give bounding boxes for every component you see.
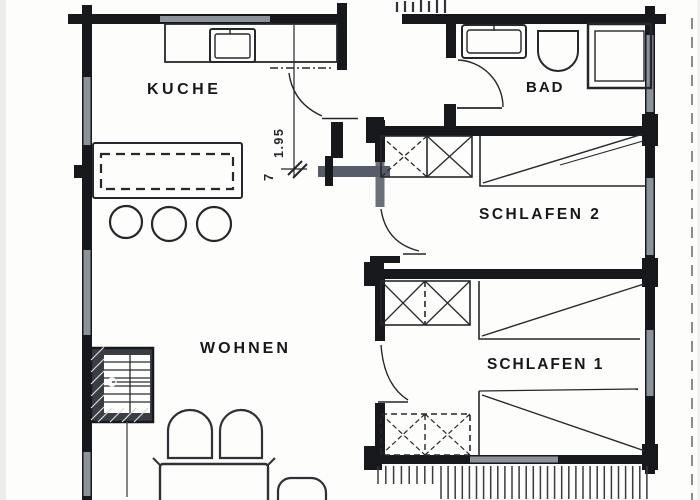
wall-top-right: [402, 14, 660, 24]
post-top-left: [82, 5, 92, 14]
walls: [68, 3, 666, 500]
room-label-kueche: KUCHE: [147, 81, 221, 99]
bed-symbol: [479, 281, 640, 339]
chair-symbol: [220, 410, 262, 458]
wall-bath-left-upper: [446, 20, 456, 58]
window-left-1: [84, 77, 91, 145]
kitchen: [165, 24, 358, 119]
wall-bedrooms-divider: [366, 269, 658, 279]
shower-symbol: [588, 24, 651, 88]
door-stub-bedroom2: [370, 256, 400, 263]
wall-bedroom2-top: [366, 126, 658, 136]
wall-hall-bedroom2-black: [375, 120, 385, 162]
shower-inner: [595, 31, 644, 81]
window-left-2: [84, 250, 91, 335]
toilet-symbol: [538, 31, 578, 71]
bar-stool-symbol: [152, 207, 186, 241]
post-hall: [331, 122, 343, 158]
dining-area: [93, 143, 242, 241]
room-label-schlafen1: SCHLAFEN 1: [487, 356, 604, 374]
post-top-right: [645, 6, 655, 16]
bar-stool-symbol: [197, 207, 231, 241]
bed-symbol: [480, 136, 646, 186]
plan-linework: [0, 0, 700, 500]
stairs-steps: [104, 355, 150, 413]
post-bottom-left: [364, 446, 382, 470]
living-furniture: [153, 410, 326, 500]
floor-plan: KUCHE BAD SCHLAFEN 2 SCHLAFEN 1 WOHNEN 1…: [0, 0, 700, 500]
dimension-text-lower: 7: [261, 159, 276, 181]
bedroom2-door-swing-symbol: [381, 209, 419, 251]
room-label-schlafen2: SCHLAFEN 2: [479, 206, 601, 224]
window-balcony-door: [470, 457, 558, 463]
table-symbol: [160, 464, 268, 500]
window-right-bedroom2: [647, 178, 654, 255]
hall-partition-tick: [325, 156, 333, 186]
bedroom1-door-swing-symbol: [381, 345, 408, 400]
stairs-symbol: [91, 347, 153, 497]
chair-symbol: [278, 478, 326, 500]
bedroom2: [381, 134, 646, 254]
post-top-right-2: [660, 14, 666, 24]
wall-hall-kitchen: [337, 3, 347, 70]
wall-living-bedroom1-upper: [375, 279, 385, 341]
window-left-3: [84, 452, 91, 496]
chair-symbol: [168, 410, 212, 458]
balcony-decking-symbol: [378, 466, 647, 499]
post-divider-right: [642, 258, 658, 287]
entrance-step-ticks: [397, 0, 445, 13]
dimension-text-vertical: 1.95: [272, 96, 286, 158]
room-label-wohnen: WOHNEN: [200, 340, 291, 358]
window-right-bedroom1: [647, 330, 654, 396]
post-bottom-right: [642, 444, 658, 470]
post-bedroom2-top-right: [642, 114, 658, 146]
post-top-left-2: [68, 14, 75, 24]
window-kitchen-top: [160, 16, 270, 22]
bath-door-swing-symbol: [458, 60, 503, 107]
sideboard-inner-dashed: [101, 154, 233, 189]
post-left-mid: [74, 165, 82, 178]
bar-stool-symbol: [110, 206, 142, 238]
room-label-bad: BAD: [526, 79, 565, 96]
sink-inner: [215, 34, 250, 58]
bath-sink-inner: [467, 30, 521, 53]
